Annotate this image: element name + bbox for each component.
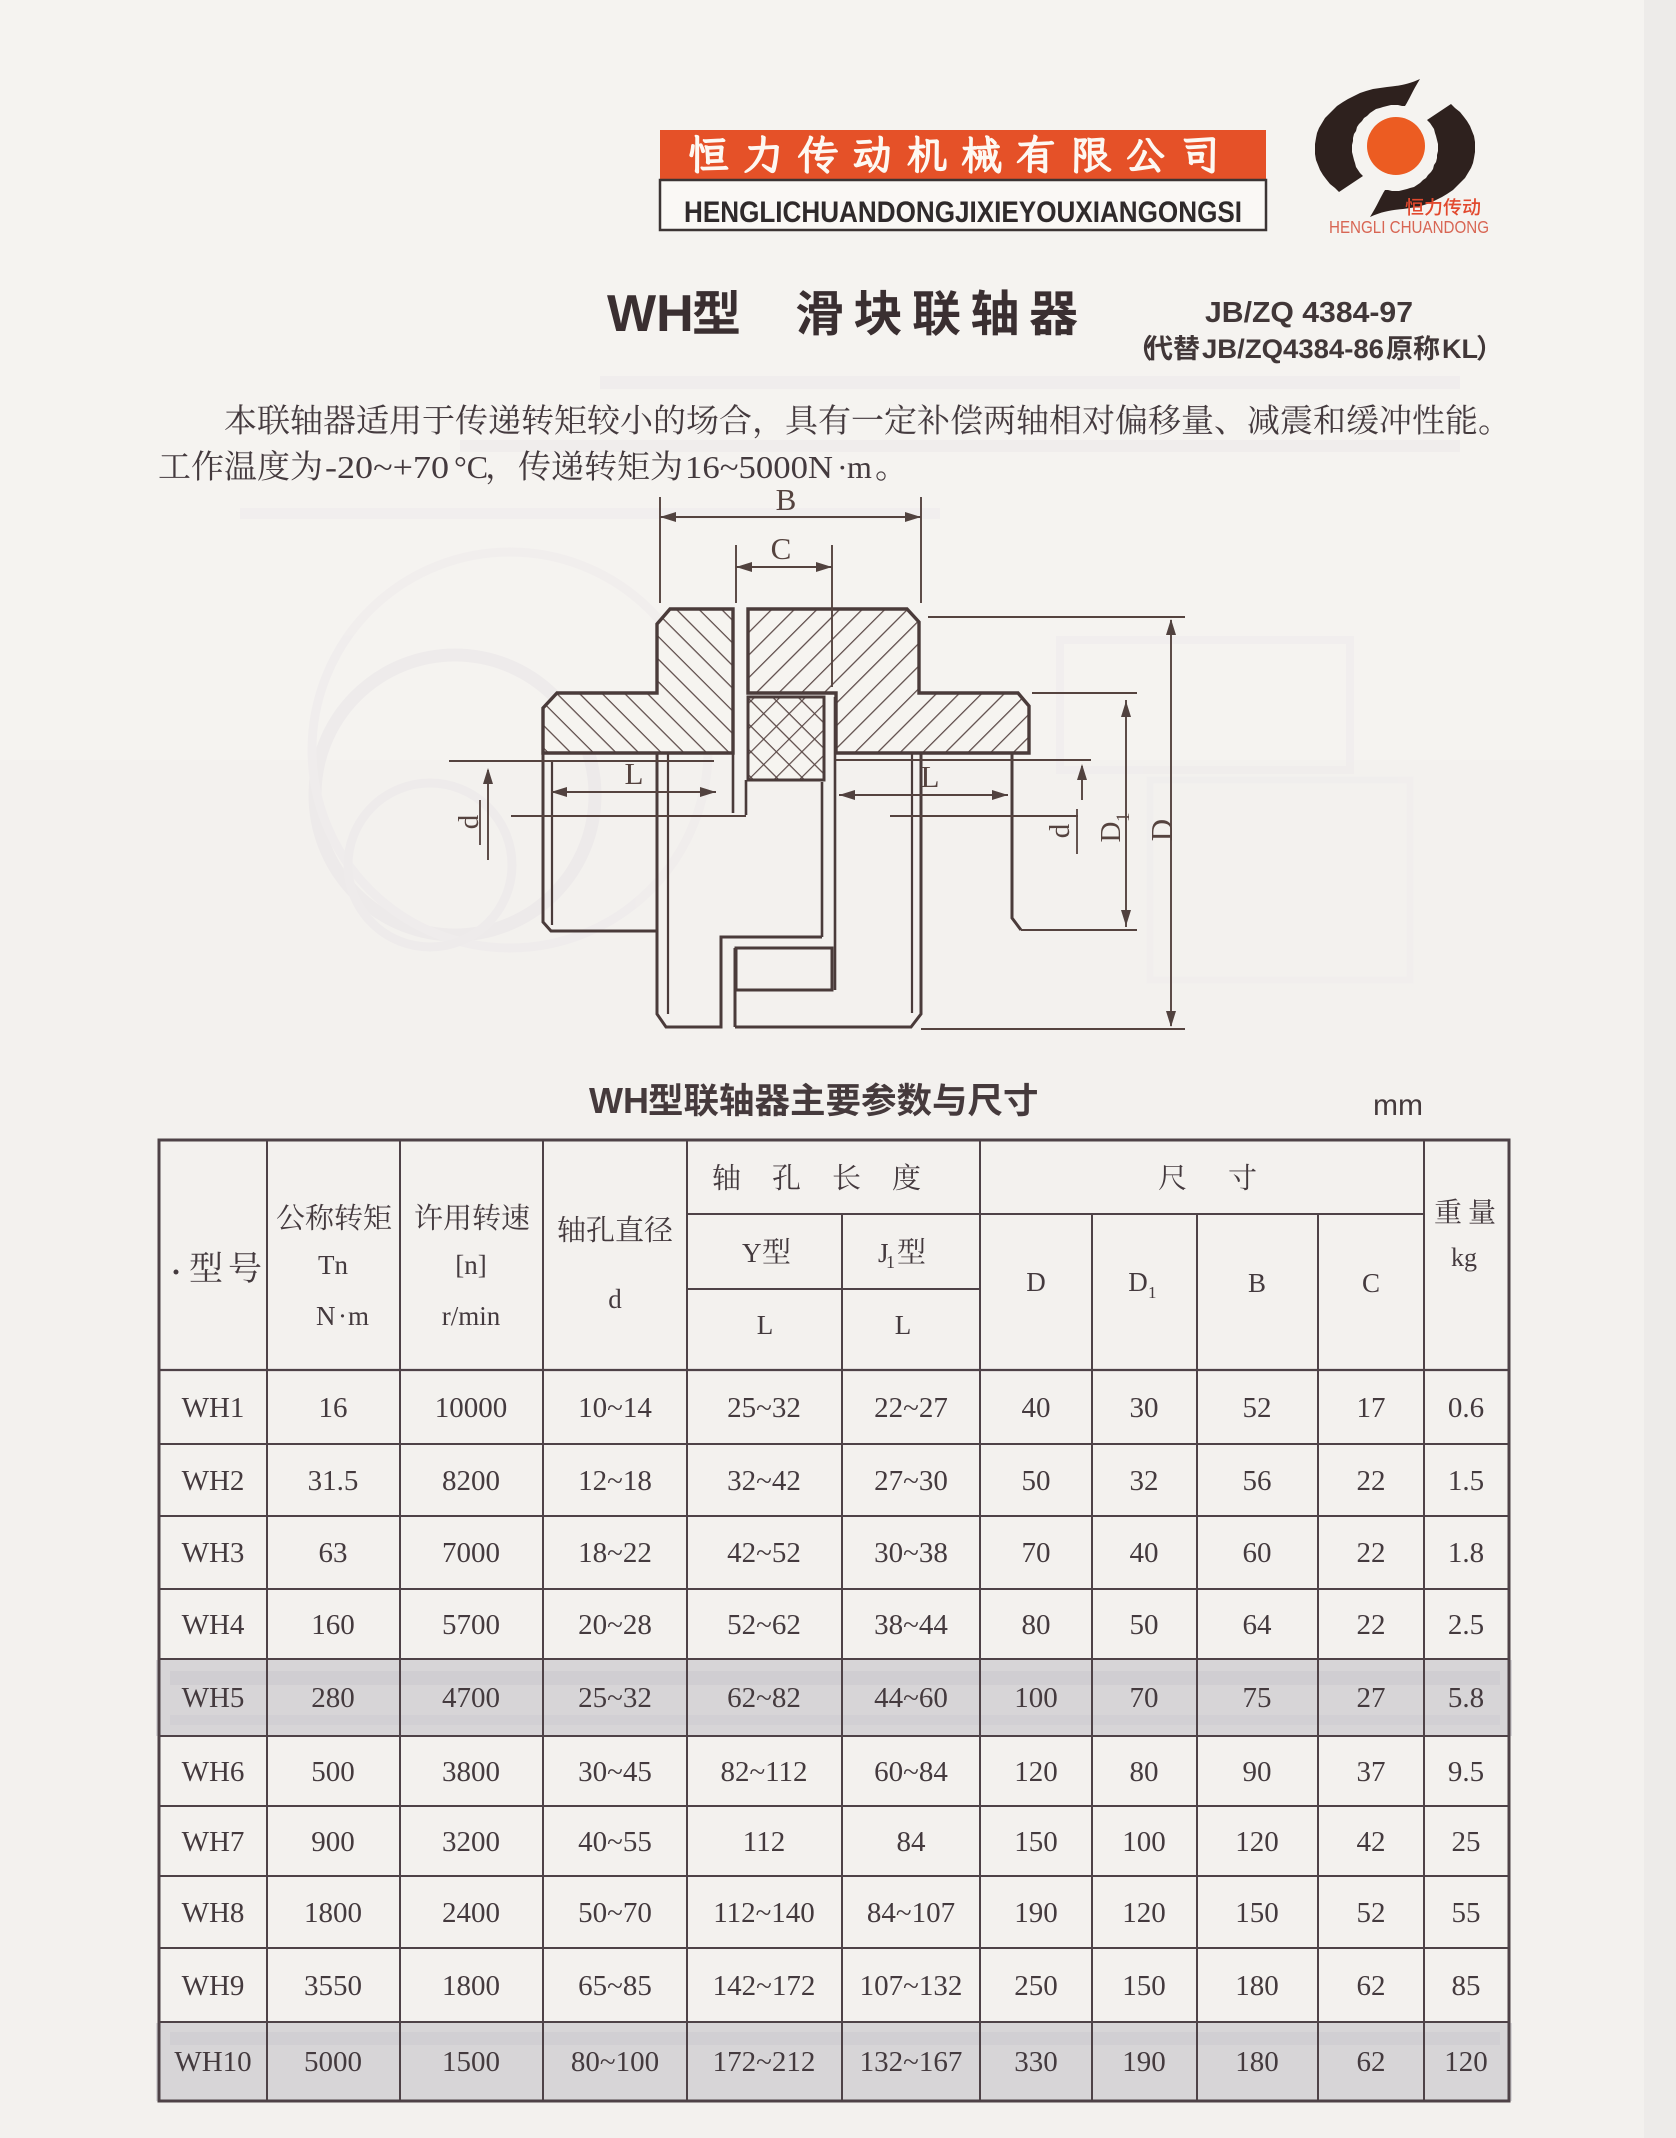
svg-text:WH6: WH6: [182, 1756, 245, 1788]
svg-text:31.5: 31.5: [308, 1465, 359, 1497]
svg-text:1800: 1800: [304, 1897, 362, 1929]
svg-text:25~32: 25~32: [727, 1392, 801, 1424]
svg-text:JB/ZQ4384-86: JB/ZQ4384-86: [1202, 334, 1384, 364]
svg-text:90: 90: [1243, 1756, 1272, 1788]
svg-text:62: 62: [1357, 2046, 1386, 2078]
svg-text:°C: °C: [454, 449, 488, 485]
svg-text:40: 40: [1130, 1537, 1159, 1569]
svg-text:-20~+70: -20~+70: [325, 449, 449, 485]
svg-text:WH5: WH5: [182, 1682, 245, 1714]
svg-text:84~107: 84~107: [867, 1897, 955, 1929]
svg-text:d: d: [608, 1284, 622, 1314]
svg-text:D: D: [1026, 1267, 1046, 1297]
svg-text:WH7: WH7: [182, 1826, 245, 1858]
svg-text:D: D: [1128, 1267, 1148, 1297]
svg-text:B: B: [776, 482, 797, 517]
svg-text:52~62: 52~62: [727, 1609, 801, 1641]
svg-text:42~52: 42~52: [727, 1537, 801, 1569]
svg-text:1: 1: [1113, 813, 1134, 823]
svg-text:500: 500: [311, 1756, 355, 1788]
svg-text:d: d: [1044, 823, 1076, 838]
svg-text:132~167: 132~167: [860, 2046, 963, 2078]
svg-text:C: C: [771, 531, 792, 566]
svg-text:107~132: 107~132: [860, 1970, 963, 2002]
svg-text:70: 70: [1130, 1682, 1159, 1714]
svg-text:56: 56: [1243, 1465, 1272, 1497]
svg-text:150: 150: [1235, 1897, 1279, 1929]
svg-text:30~38: 30~38: [874, 1537, 948, 1569]
svg-text:WH2: WH2: [182, 1465, 245, 1497]
svg-text:112: 112: [743, 1826, 785, 1858]
svg-text:62: 62: [1357, 1970, 1386, 2002]
svg-text:JB/ZQ 4384-97: JB/ZQ 4384-97: [1205, 297, 1413, 329]
svg-text:22: 22: [1357, 1537, 1386, 1569]
svg-text:5.8: 5.8: [1448, 1682, 1484, 1714]
svg-text:330: 330: [1014, 2046, 1058, 2078]
svg-text:1: 1: [886, 1252, 895, 1272]
svg-text:25: 25: [1452, 1826, 1481, 1858]
svg-text:62~82: 62~82: [727, 1682, 801, 1714]
svg-text:WH10: WH10: [174, 2046, 251, 2078]
svg-text:r/min: r/min: [442, 1301, 501, 1331]
svg-text:WH1: WH1: [182, 1392, 245, 1424]
svg-text:27~30: 27~30: [874, 1465, 948, 1497]
svg-text:112~140: 112~140: [713, 1897, 815, 1929]
svg-text:4700: 4700: [442, 1682, 500, 1714]
svg-text:84: 84: [897, 1826, 927, 1858]
svg-text:WH4: WH4: [182, 1609, 245, 1641]
svg-text:1: 1: [1148, 1283, 1157, 1302]
svg-text:16~5000N: 16~5000N: [685, 449, 833, 485]
svg-text:L: L: [757, 1310, 774, 1340]
svg-text:180: 180: [1235, 2046, 1279, 2078]
svg-text:44~60: 44~60: [874, 1682, 948, 1714]
svg-text:N: N: [316, 1301, 336, 1331]
svg-text:9.5: 9.5: [1448, 1756, 1484, 1788]
svg-text:1.5: 1.5: [1448, 1465, 1484, 1497]
svg-text:80: 80: [1130, 1756, 1159, 1788]
svg-text:180: 180: [1235, 1970, 1279, 2002]
svg-text:WH9: WH9: [182, 1970, 245, 2002]
svg-text:22: 22: [1357, 1465, 1386, 1497]
svg-text:50: 50: [1130, 1609, 1159, 1641]
svg-text:3200: 3200: [442, 1826, 500, 1858]
svg-text:32: 32: [1130, 1465, 1159, 1497]
svg-text:5000: 5000: [304, 2046, 362, 2078]
svg-text:22~27: 22~27: [874, 1392, 948, 1424]
svg-text:[n]: [n]: [455, 1250, 486, 1280]
svg-text:38~44: 38~44: [874, 1609, 948, 1641]
svg-text:20~28: 20~28: [578, 1609, 652, 1641]
svg-text:22: 22: [1357, 1609, 1386, 1641]
svg-text:L: L: [921, 759, 940, 794]
svg-text:70: 70: [1022, 1537, 1051, 1569]
svg-text:WH3: WH3: [182, 1537, 245, 1569]
svg-text:50~70: 50~70: [578, 1897, 652, 1929]
svg-text:120: 120: [1014, 1756, 1058, 1788]
svg-text:75: 75: [1243, 1682, 1272, 1714]
svg-text:30: 30: [1130, 1392, 1159, 1424]
svg-text:82~112: 82~112: [720, 1756, 807, 1788]
svg-text:120: 120: [1444, 2046, 1488, 2078]
svg-text:55: 55: [1452, 1897, 1481, 1929]
svg-text:12~18: 12~18: [578, 1465, 652, 1497]
svg-text:80~100: 80~100: [571, 2046, 659, 2078]
svg-text:1500: 1500: [442, 2046, 500, 2078]
svg-text:10~14: 10~14: [578, 1392, 652, 1424]
svg-text:m: m: [847, 449, 872, 485]
svg-text:42: 42: [1357, 1826, 1386, 1858]
svg-text:kg: kg: [1451, 1243, 1477, 1272]
svg-text:150: 150: [1122, 1970, 1166, 2002]
svg-text:100: 100: [1014, 1682, 1058, 1714]
svg-text:2400: 2400: [442, 1897, 500, 1929]
svg-text:63: 63: [319, 1537, 348, 1569]
svg-text:40~55: 40~55: [578, 1826, 652, 1858]
svg-text:190: 190: [1014, 1897, 1058, 1929]
svg-text:37: 37: [1357, 1756, 1386, 1788]
svg-text:B: B: [1248, 1268, 1266, 1298]
svg-text:250: 250: [1014, 1970, 1058, 2002]
svg-text:mm: mm: [1373, 1089, 1423, 1122]
svg-text:27: 27: [1357, 1682, 1386, 1714]
svg-text:KL: KL: [1442, 334, 1478, 364]
svg-text:3800: 3800: [442, 1756, 500, 1788]
svg-text:40: 40: [1022, 1392, 1051, 1424]
svg-text:·: ·: [338, 1301, 347, 1331]
svg-text:C: C: [1362, 1268, 1380, 1298]
svg-text:52: 52: [1357, 1897, 1386, 1929]
svg-text:160: 160: [311, 1609, 355, 1641]
svg-text:Y: Y: [742, 1238, 762, 1268]
svg-text:65~85: 65~85: [578, 1970, 652, 2002]
svg-text:0.6: 0.6: [1448, 1392, 1484, 1424]
svg-text:60~84: 60~84: [874, 1756, 948, 1788]
svg-text:L: L: [895, 1310, 912, 1340]
svg-text:120: 120: [1122, 1897, 1166, 1929]
svg-text:64: 64: [1243, 1609, 1273, 1641]
svg-text:WH: WH: [589, 1080, 649, 1121]
svg-text:3550: 3550: [304, 1970, 362, 2002]
svg-text:52: 52: [1243, 1392, 1272, 1424]
svg-text:D: D: [1144, 819, 1179, 841]
svg-text:10000: 10000: [435, 1392, 508, 1424]
svg-text:L: L: [625, 756, 644, 791]
svg-text:1.8: 1.8: [1448, 1537, 1484, 1569]
svg-text:60: 60: [1243, 1537, 1272, 1569]
svg-text:m: m: [348, 1301, 369, 1331]
svg-text:85: 85: [1452, 1970, 1481, 2002]
svg-text:80: 80: [1022, 1609, 1051, 1641]
svg-text:WH: WH: [607, 285, 694, 343]
svg-text:142~172: 142~172: [713, 1970, 816, 2002]
svg-text:HENGLICHUANDONGJIXIEYOUXIANGON: HENGLICHUANDONGJIXIEYOUXIANGONGSI: [684, 196, 1242, 229]
svg-text:16: 16: [319, 1392, 348, 1424]
svg-text:8200: 8200: [442, 1465, 500, 1497]
svg-text:1800: 1800: [442, 1970, 500, 2002]
svg-text:17: 17: [1357, 1392, 1386, 1424]
svg-text:18~22: 18~22: [578, 1537, 652, 1569]
svg-text:HENGLI CHUANDONG: HENGLI CHUANDONG: [1329, 217, 1489, 237]
svg-text:172~212: 172~212: [713, 2046, 816, 2078]
svg-text:30~45: 30~45: [578, 1756, 652, 1788]
svg-text:WH8: WH8: [182, 1897, 245, 1929]
svg-text:190: 190: [1122, 2046, 1166, 2078]
svg-text:25~32: 25~32: [578, 1682, 652, 1714]
svg-text:D: D: [1095, 822, 1127, 843]
svg-text:280: 280: [311, 1682, 355, 1714]
svg-text:Tn: Tn: [318, 1250, 348, 1280]
svg-text:2.5: 2.5: [1448, 1609, 1484, 1641]
svg-text:100: 100: [1122, 1826, 1166, 1858]
svg-text:150: 150: [1014, 1826, 1058, 1858]
svg-text:5700: 5700: [442, 1609, 500, 1641]
svg-text:32~42: 32~42: [727, 1465, 801, 1497]
svg-text:50: 50: [1022, 1465, 1051, 1497]
svg-text:900: 900: [311, 1826, 355, 1858]
svg-text:120: 120: [1235, 1826, 1279, 1858]
svg-text:7000: 7000: [442, 1537, 500, 1569]
